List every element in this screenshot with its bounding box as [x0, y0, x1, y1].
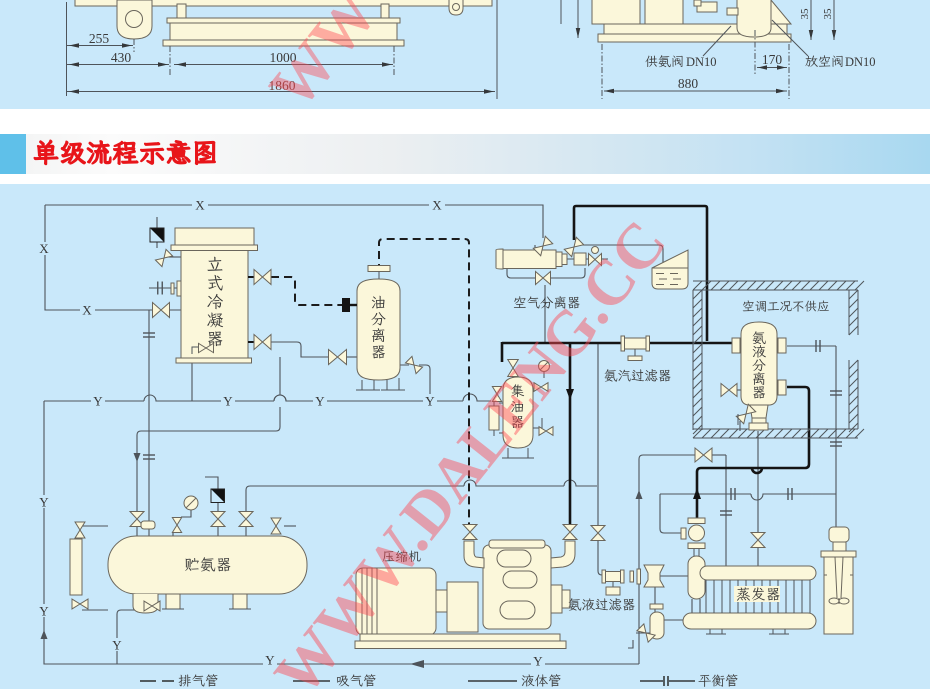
svg-text:170: 170: [762, 52, 783, 67]
svg-text:Y: Y: [315, 394, 325, 409]
svg-text:X: X: [82, 303, 92, 318]
svg-text:Y: Y: [39, 604, 49, 619]
svg-text:Y: Y: [39, 495, 49, 510]
svg-text:Y: Y: [425, 394, 435, 409]
svg-text:35: 35: [799, 8, 811, 20]
svg-text:35: 35: [822, 8, 834, 20]
svg-text:DN10: DN10: [845, 55, 876, 69]
svg-text:X: X: [432, 198, 442, 213]
svg-text:Y: Y: [93, 394, 103, 409]
svg-text:WW: WW: [255, 0, 390, 109]
svg-text:255: 255: [89, 31, 110, 46]
svg-text:DN10: DN10: [686, 55, 717, 69]
svg-text:880: 880: [678, 76, 699, 91]
svg-text:Y: Y: [533, 654, 543, 669]
svg-text:430: 430: [111, 50, 132, 65]
svg-text:X: X: [39, 241, 49, 256]
svg-text:X: X: [195, 198, 205, 213]
svg-text:Y: Y: [223, 394, 233, 409]
svg-text:Y: Y: [112, 638, 122, 653]
